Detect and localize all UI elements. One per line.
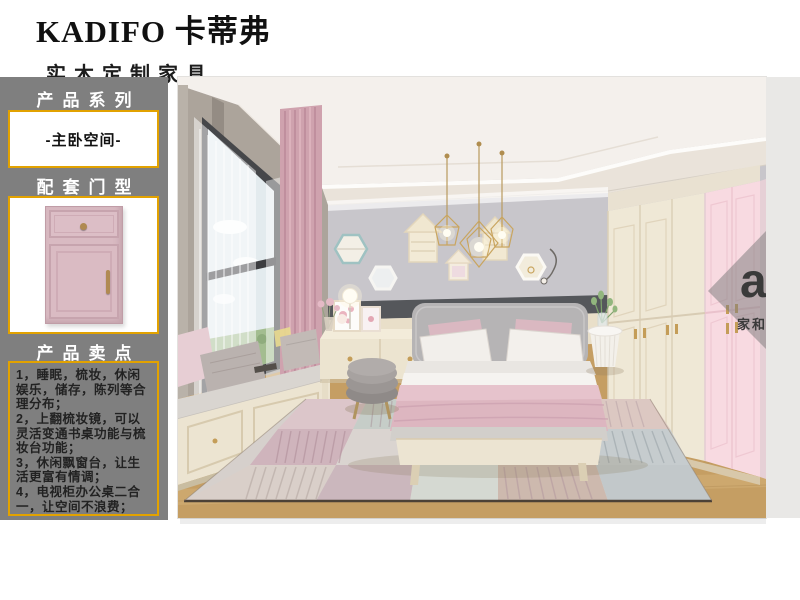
selling-point: 4，电视柜办公桌二合一，让空间不浪费； xyxy=(16,485,151,514)
door-knob xyxy=(80,223,87,230)
pouf-stool xyxy=(345,358,399,419)
series-name: -主卧空间- xyxy=(46,129,122,150)
door-drawer xyxy=(49,210,119,238)
cabinet-door-graphic xyxy=(45,206,123,324)
section-title-product-series: 产品系列 xyxy=(0,86,168,111)
brand-header: KADIFO 卡蒂弗 实木定制家具 xyxy=(36,6,271,87)
selling-point: 2，上翻梳妆镜，可以灵活变通书桌功能与梳妆台功能； xyxy=(16,412,151,456)
door-lower-panel xyxy=(56,251,112,312)
section-title-door-type: 配套门型 xyxy=(0,173,168,198)
selling-point: 1，睡眠，梳妆，休闲娱乐，储存，陈列等合理分布； xyxy=(16,368,151,412)
door-handle xyxy=(106,270,110,294)
series-box: -主卧空间- xyxy=(8,110,159,168)
bedroom-photo xyxy=(178,77,766,518)
right-margin xyxy=(766,77,800,518)
selling-points-box: 1，睡眠，梳妆，休闲娱乐，储存，陈列等合理分布； 2，上翻梳妆镜，可以灵活变通书… xyxy=(8,361,159,516)
brand-title: KADIFO 卡蒂弗 xyxy=(36,6,271,51)
selling-point: 3，休闲飘窗台，让生活更富有情调； xyxy=(16,456,151,485)
sidebar: 产品系列 -主卧空间- 配套门型 产品卖点 1，睡眠，梳妆，休闲娱乐，储存，陈列… xyxy=(0,77,168,520)
photo-shadow xyxy=(180,518,766,524)
door-lower xyxy=(49,244,119,319)
bedroom-scene xyxy=(178,77,766,518)
door-box xyxy=(8,196,159,334)
